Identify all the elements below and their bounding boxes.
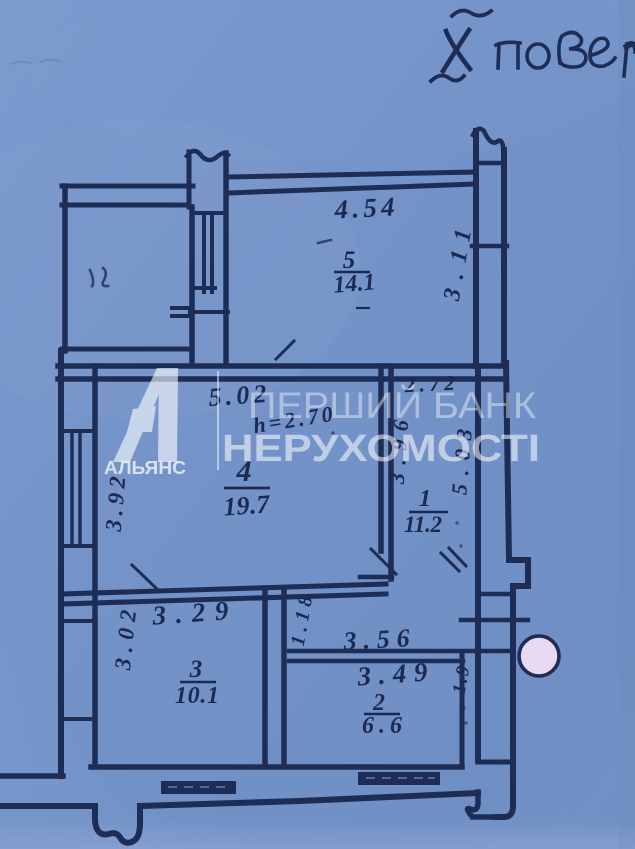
svg-text:4.54: 4.54	[333, 191, 395, 224]
svg-text:6.6: 6.6	[362, 713, 402, 739]
svg-text:5: 5	[343, 247, 356, 274]
svg-text:1: 1	[419, 486, 431, 512]
svg-text:11.2: 11.2	[404, 512, 442, 537]
svg-text:19.7: 19.7	[222, 489, 271, 521]
svg-text:10.1: 10.1	[175, 683, 219, 709]
svg-text:НЕРУХОМОСТІ: НЕРУХОМОСТІ	[222, 428, 540, 470]
svg-text:14.1: 14.1	[332, 269, 376, 299]
svg-text:3: 3	[189, 656, 203, 683]
svg-text:АЛЬЯНС: АЛЬЯНС	[104, 458, 186, 478]
svg-text:ПЕРШИЙ БАНК: ПЕРШИЙ БАНК	[248, 384, 536, 426]
